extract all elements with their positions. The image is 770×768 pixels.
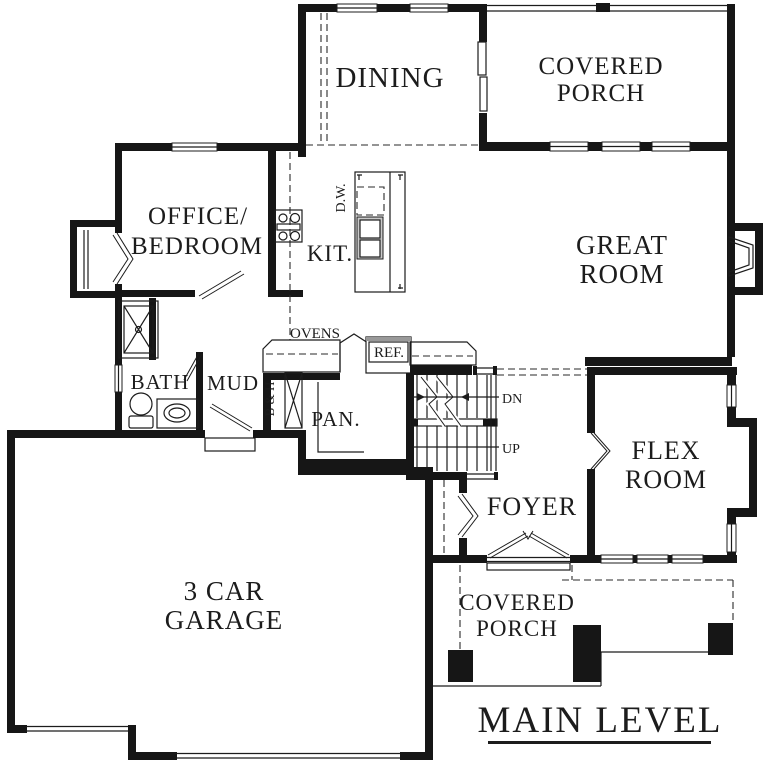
- pantry-label: PAN.: [311, 407, 360, 431]
- flex-room: FLEX ROOM: [587, 367, 757, 563]
- covered-porch-upper-label-line2: PORCH: [557, 80, 645, 107]
- right-counter: [410, 342, 476, 365]
- stairs-up-label: UP: [502, 442, 520, 457]
- garage-label-line1: 3 CAR: [184, 576, 265, 606]
- great-room-label-line2: ROOM: [579, 259, 664, 289]
- flex-room-label-line1: FLEX: [632, 436, 701, 465]
- window-icon: [727, 524, 736, 552]
- office-bedroom: OFFICE/ BEDROOM: [70, 143, 306, 299]
- covered-porch-lower-label-line1: COVERED: [459, 590, 575, 615]
- great-room: GREAT ROOM: [497, 150, 763, 375]
- broom-hamper-label: B & H: [262, 382, 277, 417]
- pantry-area: B & H PAN.: [262, 373, 414, 473]
- porch-door-icon: [478, 42, 487, 111]
- bathroom: BATH: [115, 298, 203, 430]
- plan-title-block: MAIN LEVEL: [477, 700, 722, 744]
- window-icon: [172, 143, 217, 151]
- plan-title: MAIN LEVEL: [477, 700, 722, 741]
- window-icon: [550, 142, 690, 151]
- kitchen-island: [355, 172, 405, 292]
- refrigerator-label: REF.: [374, 345, 404, 361]
- dining-label: DINING: [335, 62, 444, 94]
- cooktop-icon: [275, 210, 302, 242]
- title-underline: [488, 741, 711, 744]
- office-bedroom-label-line1: OFFICE/: [148, 203, 248, 230]
- porch-post: [448, 650, 473, 682]
- garage-door-icon: [27, 727, 128, 732]
- floor-plan-page: DINING COVERED PORCH: [0, 0, 770, 768]
- staircase: DN UP: [406, 366, 522, 480]
- double-sink-icon: [357, 217, 383, 259]
- dining-room: DINING: [298, 4, 479, 157]
- mud-label: MUD: [207, 371, 259, 395]
- garage: 3 CAR GARAGE: [7, 430, 433, 760]
- office-closet: [70, 220, 133, 298]
- garage-entry-door-icon: [205, 404, 255, 451]
- arrow-icon: [461, 393, 469, 401]
- dishwasher-label: D.W.: [334, 183, 349, 212]
- flex-room-label-line2: ROOM: [625, 465, 707, 494]
- sink-icon: [157, 399, 198, 428]
- french-doors-icon: [591, 433, 610, 469]
- stairs-down-label: DN: [502, 392, 522, 407]
- garage-door-icon: [177, 754, 400, 759]
- porch-post: [573, 625, 601, 682]
- covered-porch-lower-label-line2: PORCH: [476, 616, 558, 641]
- bifold-door-icon: [285, 373, 302, 428]
- foyer: FOYER: [425, 475, 590, 570]
- porch-post: [708, 623, 733, 655]
- kitchen: KIT. D.W. OVENS REF.: [263, 152, 476, 375]
- front-door-icon: [487, 531, 570, 570]
- covered-porch-upper-label-line1: COVERED: [538, 53, 663, 80]
- covered-porch-upper: COVERED PORCH: [478, 3, 735, 151]
- arrow-icon: [417, 393, 425, 401]
- dishwasher-outline: [357, 187, 384, 215]
- window-icon: [601, 555, 703, 563]
- ovens-label: OVENS: [290, 326, 340, 342]
- office-door-icon: [199, 271, 244, 299]
- office-bedroom-label-line2: BEDROOM: [131, 233, 263, 260]
- corner-cabinet: [340, 334, 368, 372]
- window-icon: [115, 365, 122, 392]
- mud-room: MUD: [205, 371, 259, 451]
- stair-treads: [417, 375, 487, 471]
- toilet-icon: [129, 393, 153, 428]
- garage-label-line2: GARAGE: [165, 605, 284, 635]
- coat-closet-door-icon: [458, 494, 478, 537]
- great-room-label-line1: GREAT: [576, 230, 668, 260]
- bath-label: BATH: [131, 370, 190, 394]
- ovens-counter: [263, 340, 340, 372]
- window-icon: [727, 385, 736, 407]
- foyer-label: FOYER: [487, 492, 577, 521]
- covered-porch-lower: COVERED PORCH: [433, 565, 733, 686]
- kitchen-label: KIT.: [307, 241, 353, 266]
- floor-plan-drawing: DINING COVERED PORCH: [0, 0, 770, 768]
